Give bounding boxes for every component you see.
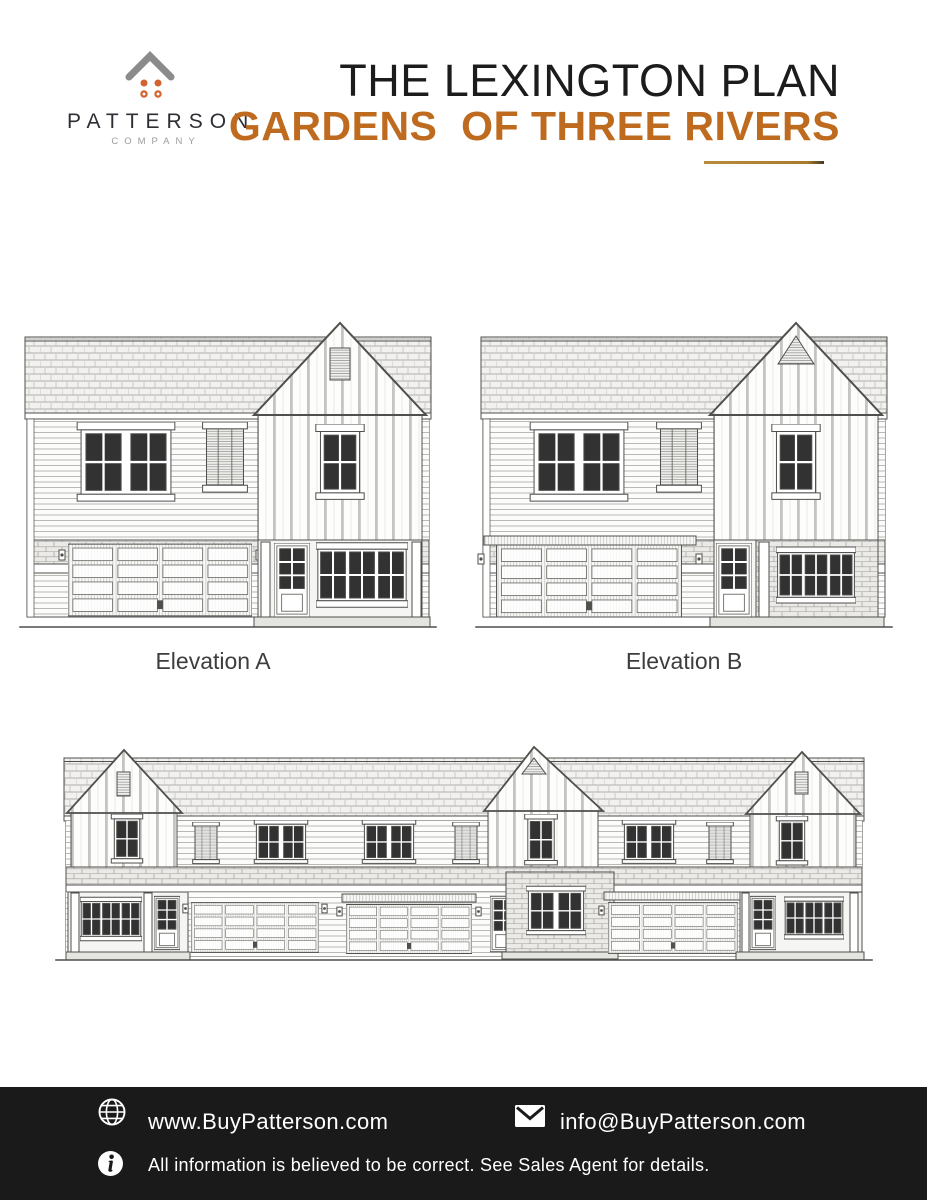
elevation-b-drawing — [474, 312, 894, 642]
brand-name: PATTERSON — [60, 110, 247, 134]
elevation-a-label: Elevation A — [118, 648, 308, 675]
info-icon — [97, 1150, 124, 1177]
email-link[interactable]: info@BuyPatterson.com — [560, 1109, 806, 1135]
brand-logo: PATTERSON COMPANY — [60, 42, 240, 157]
community-title: GARDENS OF THREE RIVERS — [229, 105, 840, 148]
envelope-icon — [514, 1103, 546, 1129]
footer-bar: www.BuyPatterson.com info@BuyPatterson.c… — [0, 1087, 927, 1200]
elevation-a-drawing — [18, 312, 438, 642]
disclaimer-text: All information is believed to be correc… — [148, 1155, 710, 1176]
flyer-page: PATTERSON COMPANY THE LEXINGTON PLAN GAR… — [0, 0, 927, 1200]
elevation-b-label: Elevation B — [589, 648, 779, 675]
title-underline — [704, 161, 824, 165]
header-title-block: THE LEXINGTON PLAN GARDENS OF THREE RIVE… — [229, 58, 840, 169]
patterson-house-logo-icon — [122, 48, 178, 104]
page-title: THE LEXINGTON PLAN — [229, 58, 840, 104]
townhome-row-elevation-drawing — [54, 744, 874, 966]
brand-subtitle: COMPANY — [60, 136, 246, 147]
website-link[interactable]: www.BuyPatterson.com — [148, 1109, 388, 1135]
globe-icon — [97, 1097, 127, 1127]
